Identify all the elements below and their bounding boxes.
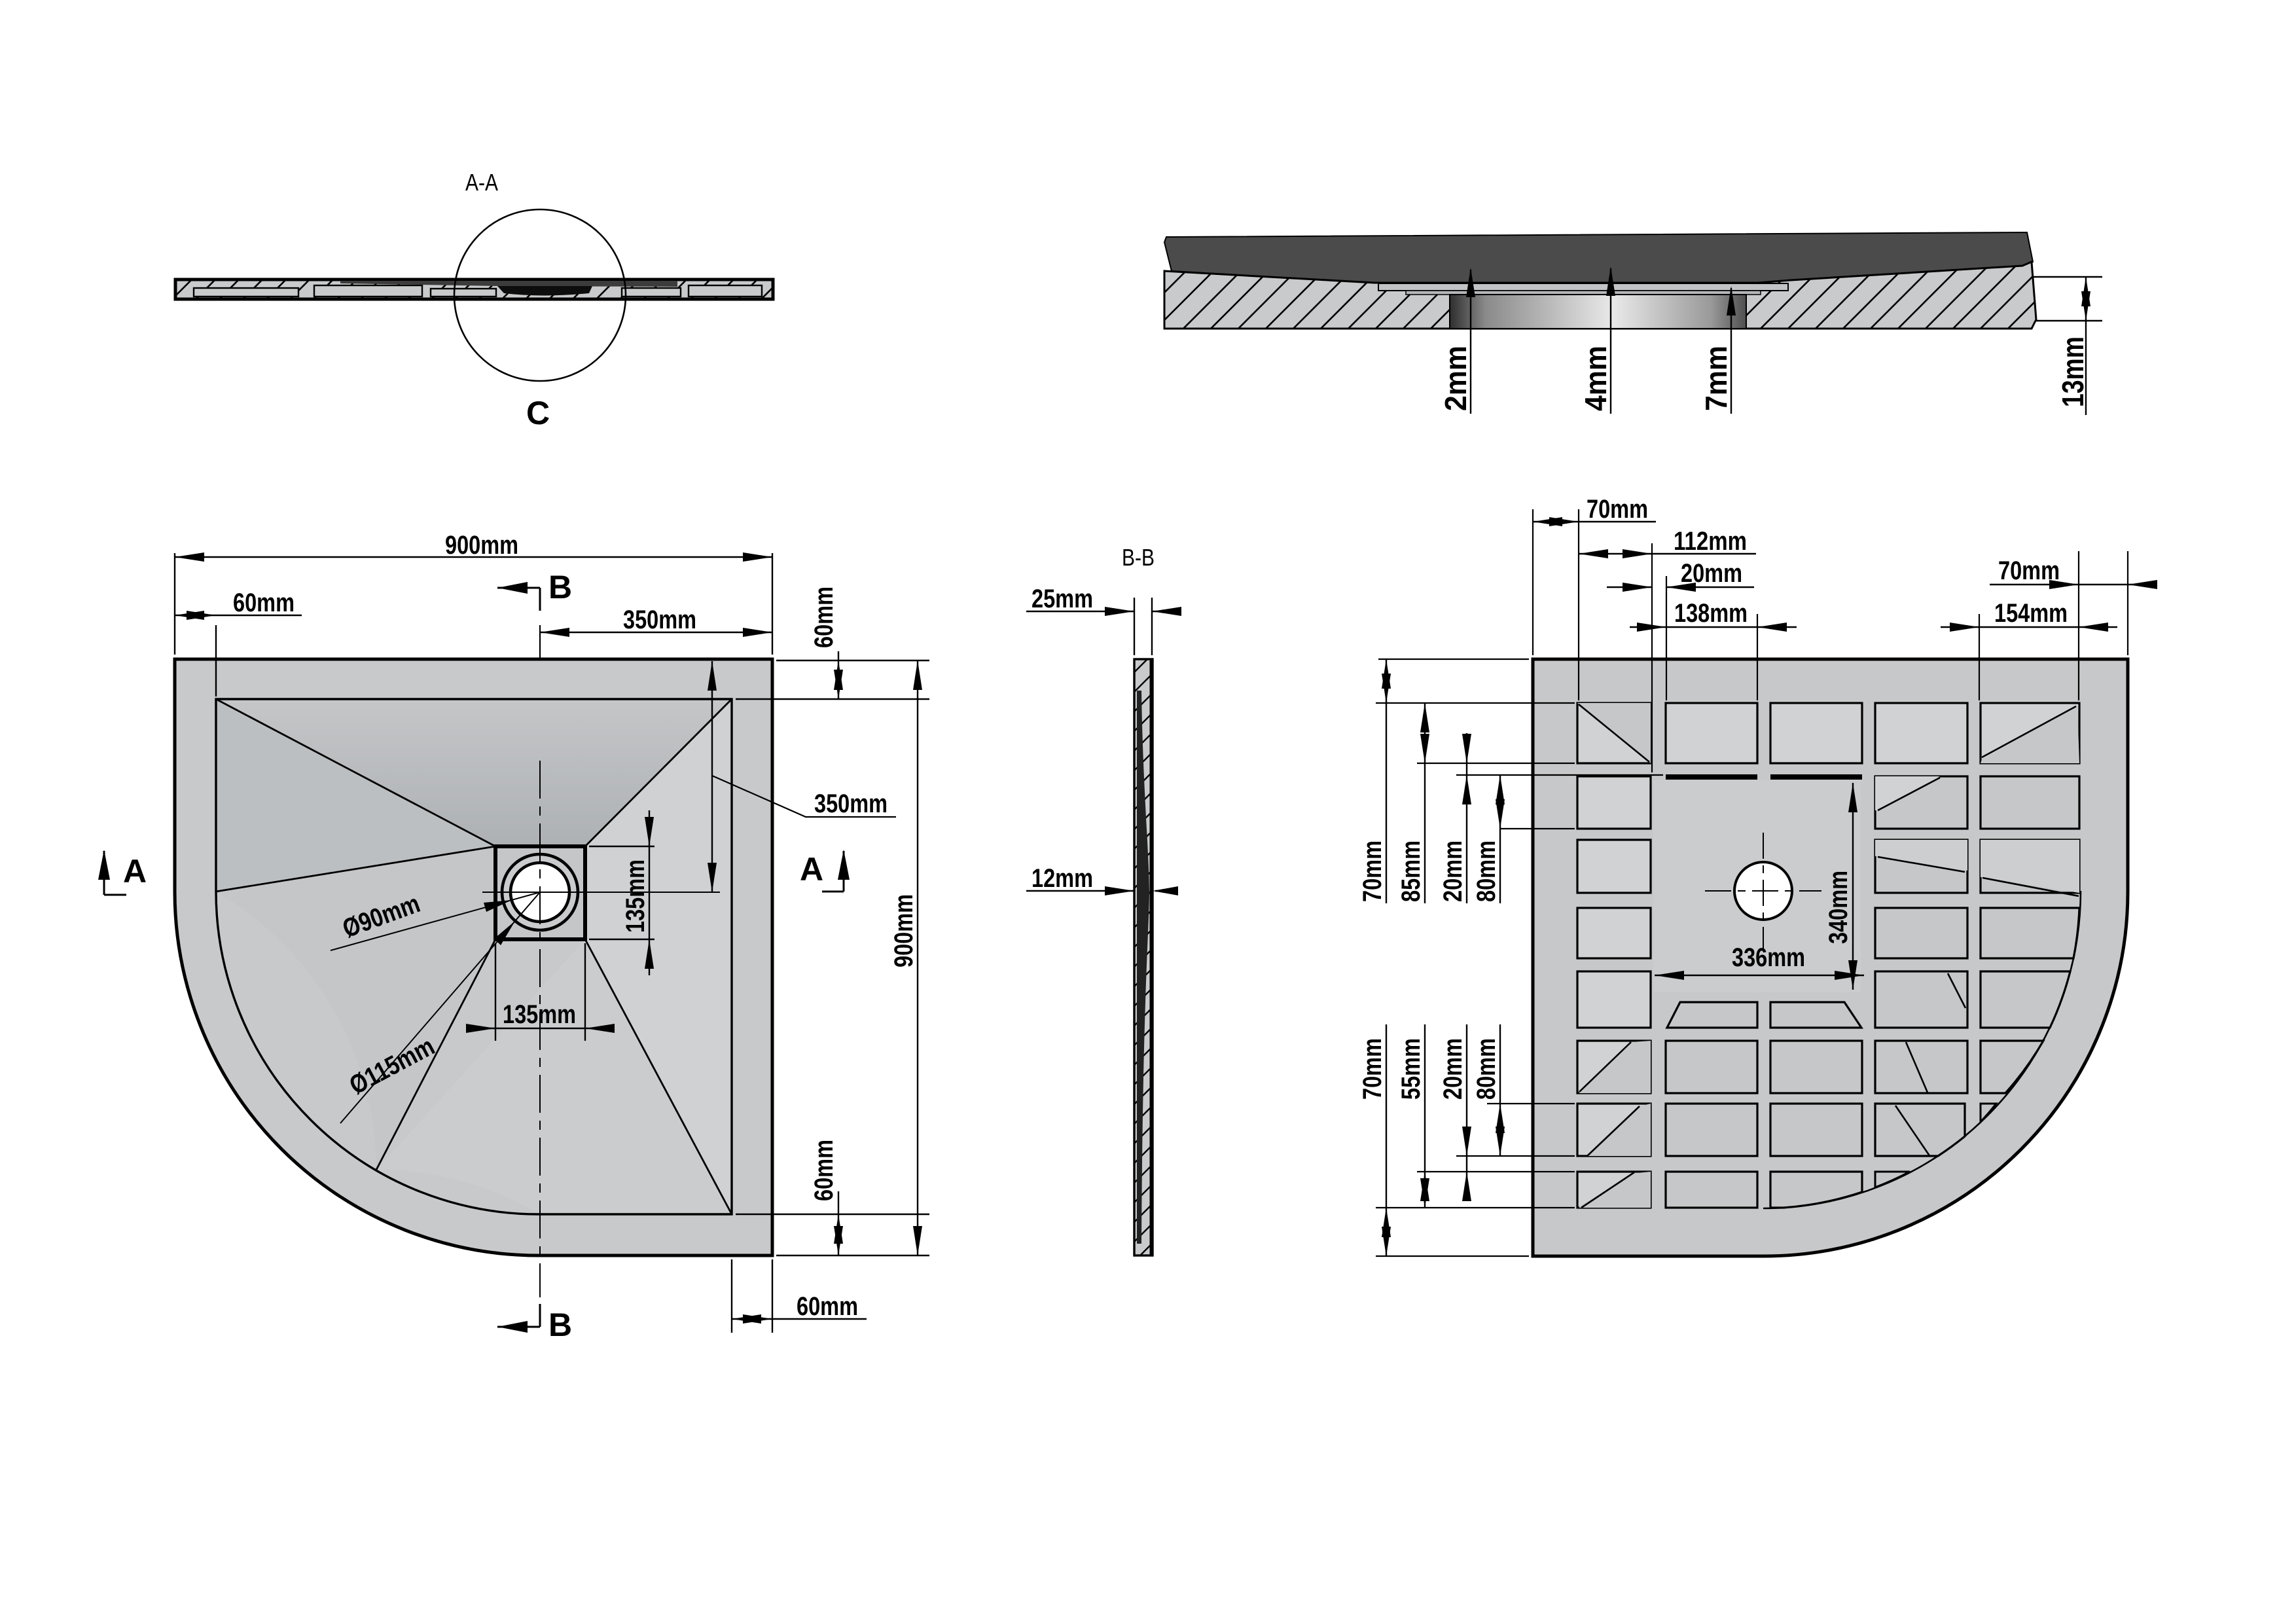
svg-text:350mm: 350mm <box>814 789 888 818</box>
svg-text:25mm: 25mm <box>1031 585 1093 613</box>
svg-text:B: B <box>548 1307 572 1343</box>
svg-text:A: A <box>800 851 823 888</box>
svg-text:7mm: 7mm <box>1699 346 1733 411</box>
svg-text:20mm: 20mm <box>1439 1038 1467 1100</box>
svg-text:135mm: 135mm <box>621 859 650 933</box>
svg-text:C: C <box>526 395 550 431</box>
svg-text:60mm: 60mm <box>797 1292 858 1321</box>
svg-text:112mm: 112mm <box>1674 527 1747 556</box>
svg-text:2mm: 2mm <box>1439 346 1473 411</box>
svg-text:138mm: 138mm <box>1674 599 1748 628</box>
svg-text:70mm: 70mm <box>1587 495 1648 524</box>
svg-text:70mm: 70mm <box>1998 556 2060 585</box>
svg-text:B: B <box>548 569 572 605</box>
svg-text:20mm: 20mm <box>1439 840 1467 902</box>
svg-text:80mm: 80mm <box>1472 1038 1501 1100</box>
svg-text:350mm: 350mm <box>623 605 696 634</box>
svg-text:340mm: 340mm <box>1824 871 1853 944</box>
svg-text:85mm: 85mm <box>1397 840 1426 902</box>
svg-text:60mm: 60mm <box>810 1140 838 1201</box>
svg-text:60mm: 60mm <box>810 586 838 648</box>
svg-text:80mm: 80mm <box>1472 840 1501 902</box>
svg-text:900mm: 900mm <box>445 531 518 560</box>
svg-text:336mm: 336mm <box>1732 943 1805 972</box>
svg-text:55mm: 55mm <box>1397 1038 1426 1100</box>
svg-text:A-A: A-A <box>465 169 498 196</box>
svg-text:70mm: 70mm <box>1358 1038 1387 1100</box>
svg-text:900mm: 900mm <box>889 894 918 967</box>
svg-text:70mm: 70mm <box>1358 840 1387 902</box>
svg-text:154mm: 154mm <box>1994 599 2068 628</box>
svg-text:135mm: 135mm <box>503 1000 576 1029</box>
svg-text:4mm: 4mm <box>1579 346 1613 411</box>
svg-text:13mm: 13mm <box>2056 336 2090 407</box>
svg-text:B-B: B-B <box>1122 544 1155 571</box>
svg-text:12mm: 12mm <box>1031 864 1093 893</box>
svg-text:60mm: 60mm <box>233 588 295 617</box>
svg-text:A: A <box>123 853 147 890</box>
svg-text:20mm: 20mm <box>1681 559 1742 588</box>
